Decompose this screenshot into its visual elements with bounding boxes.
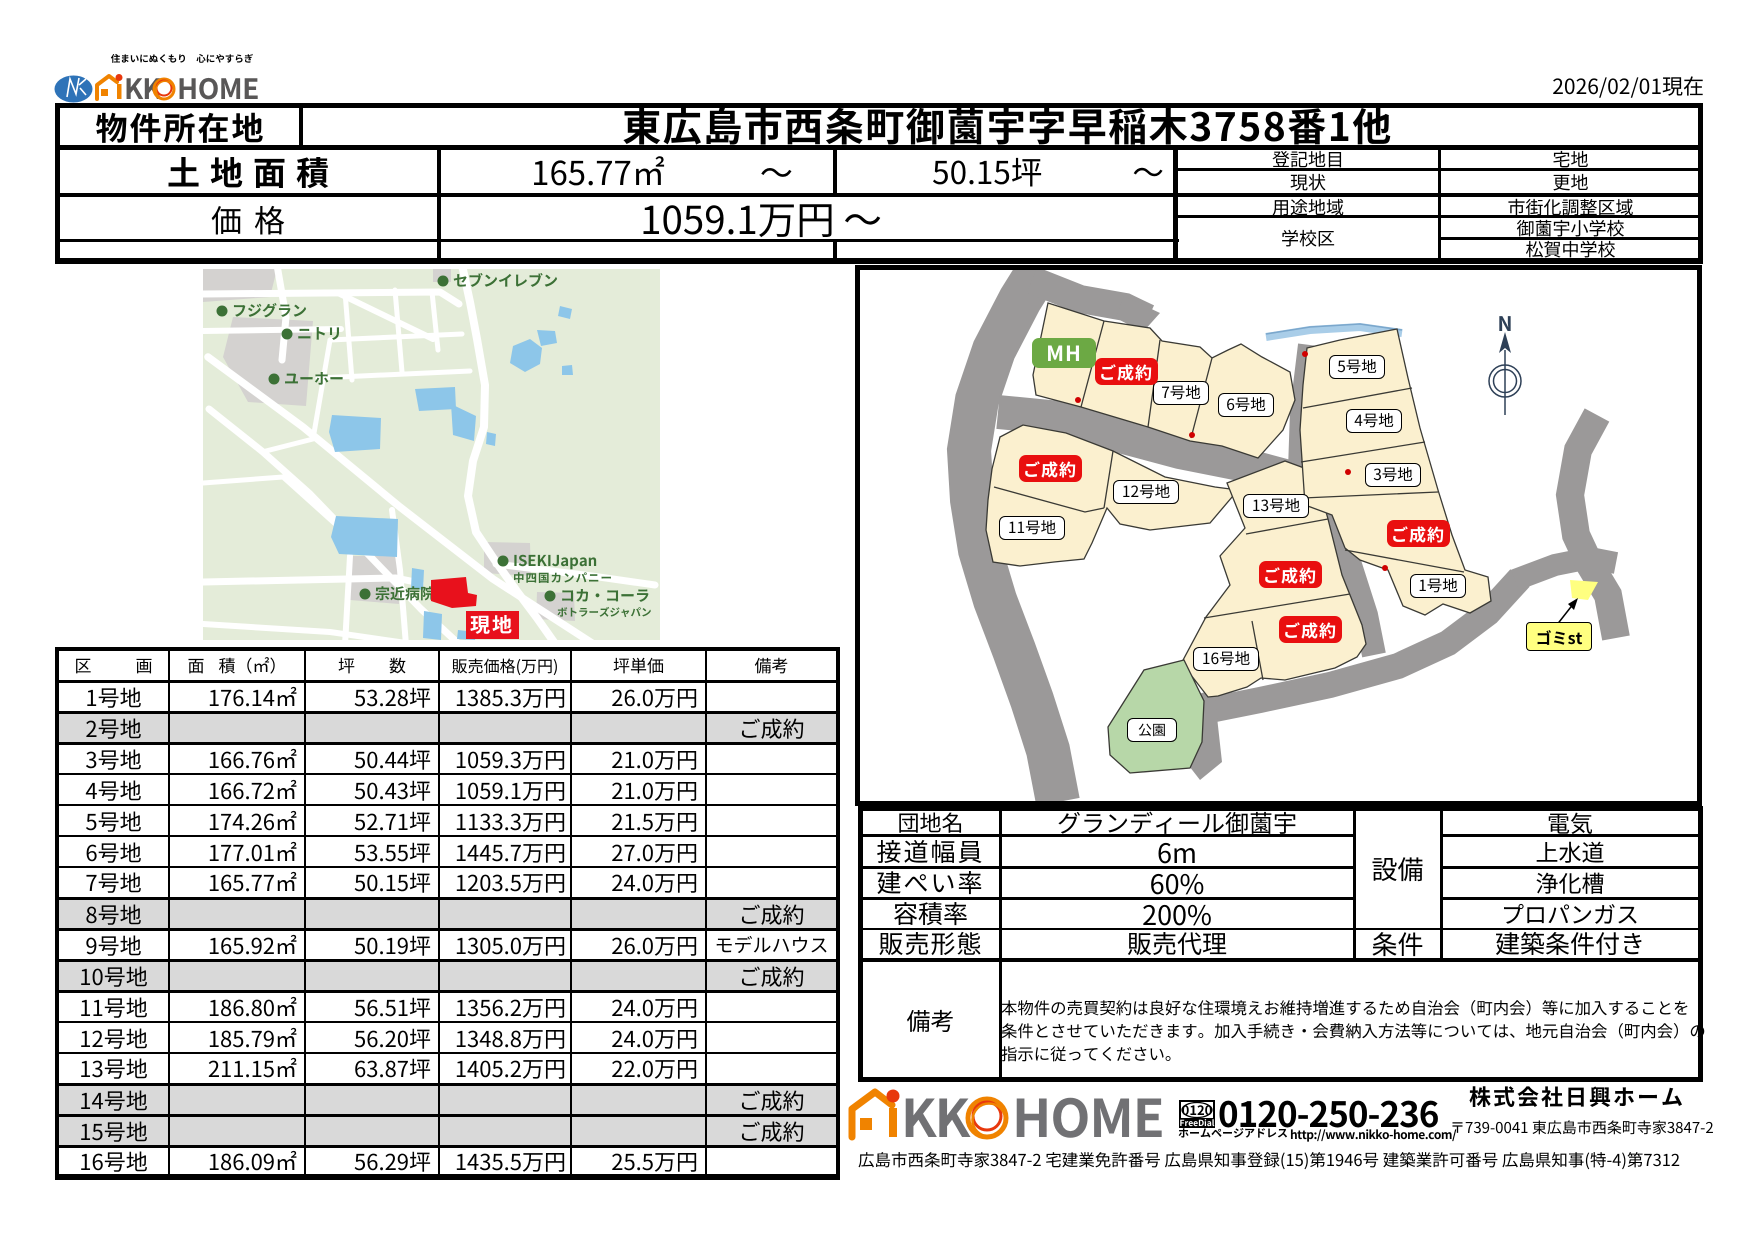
svg-text:中四国カンパニー: 中四国カンパニー: [513, 570, 613, 586]
svg-text:ボトラーズジャパン: ボトラーズジャパン: [557, 605, 652, 620]
svg-text:HOME: HOME: [177, 68, 259, 104]
svg-text:現地: 現地: [470, 609, 514, 638]
svg-text:ユーホー: ユーホー: [284, 368, 344, 389]
svg-text:宗近病院: 宗近病院: [375, 583, 435, 604]
svg-text:HOME: HOME: [1012, 1085, 1164, 1147]
svg-text:N: N: [1498, 308, 1513, 337]
svg-text:セブンイレブン: セブンイレブン: [453, 270, 558, 291]
svg-text:KK: KK: [901, 1085, 971, 1147]
svg-text:フジグラン: フジグラン: [232, 300, 307, 321]
svg-text:コカ・コーラ: コカ・コーラ: [560, 585, 650, 606]
svg-text:ニトリ: ニトリ: [297, 323, 342, 344]
svg-text:ISEKIJapan: ISEKIJapan: [513, 550, 597, 571]
